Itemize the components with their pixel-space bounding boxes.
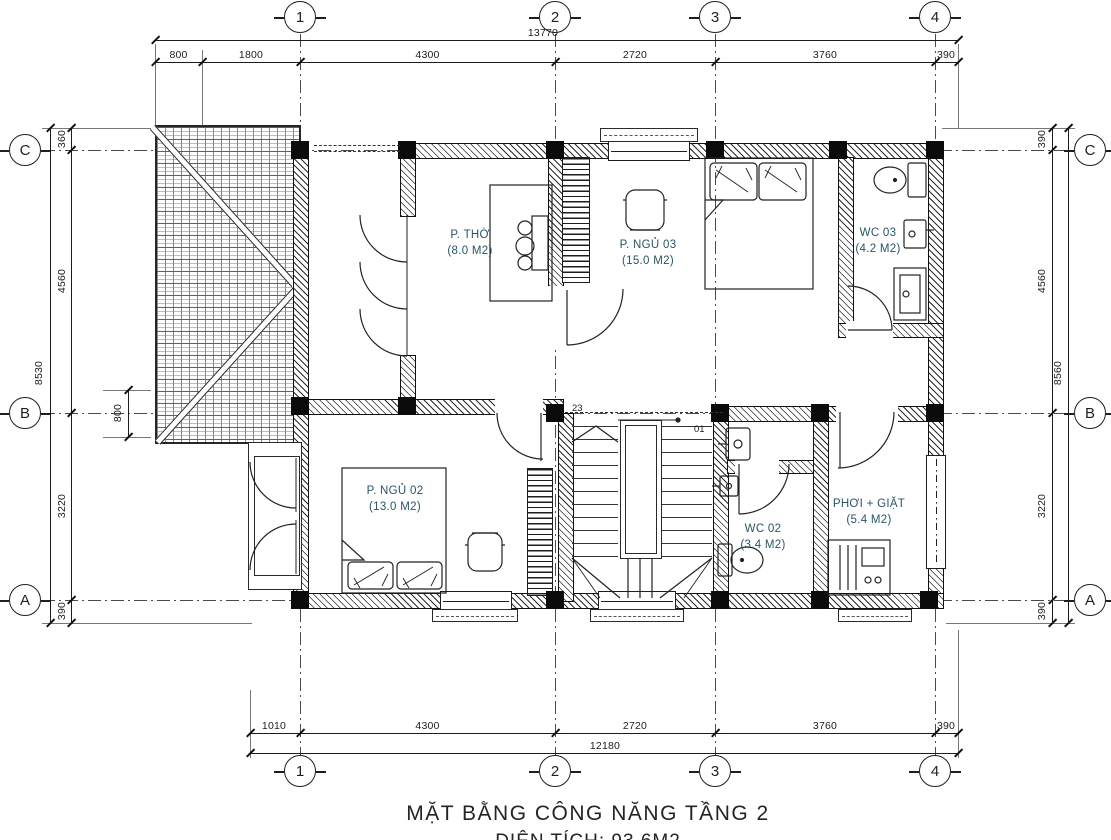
stair-direction-arrow [572, 418, 680, 442]
room-label-wc03: WC 03 (4.2 M2) [828, 226, 928, 257]
room-name: P. NGỦ 03 [588, 238, 708, 254]
room-area: (15.0 M2) [588, 254, 708, 270]
door-arc-wc02 [739, 464, 789, 514]
room-label-tho: P. THỜ (8.0 M2) [410, 228, 530, 259]
door-arc-wc03 [848, 286, 892, 330]
room-label-phoi-giat: PHƠI + GIẶT (5.4 M2) [814, 497, 924, 528]
room-area: (13.0 M2) [335, 500, 455, 516]
wardrobe-folding-doors [360, 215, 407, 356]
room-area: (3.4 M2) [713, 538, 813, 554]
floor-plan-sheet: 1 2 3 4 1 2 3 4 C B A C B A 800 1800 430… [0, 0, 1111, 840]
room-name: PHƠI + GIẶT [814, 497, 924, 513]
room-name: WC 03 [828, 226, 928, 242]
room-name: P. THỜ [410, 228, 530, 244]
plan-linework [0, 0, 1111, 840]
chair-bedroom02 [465, 533, 505, 571]
washing-machine [828, 540, 890, 595]
room-label-ngu02: P. NGỦ 02 (13.0 M2) [335, 484, 455, 515]
toilet-wc03 [874, 163, 926, 197]
chair-bedroom03 [623, 190, 667, 230]
closet-double-doors [250, 458, 296, 574]
room-label-wc02: WC 02 (3.4 M2) [713, 522, 813, 553]
bed-bedroom03 [705, 158, 813, 289]
room-label-ngu03: P. NGỦ 03 (15.0 M2) [588, 238, 708, 269]
room-name: WC 02 [713, 522, 813, 538]
room-name: P. NGỦ 02 [335, 484, 455, 500]
room-area: (8.0 M2) [410, 244, 530, 260]
drawing-title: MẶT BẰNG CÔNG NĂNG TẦNG 2 [318, 802, 858, 826]
stair-winder-lines [572, 558, 712, 598]
sink-hallway [718, 428, 750, 460]
door-arc-bedroom02 [497, 413, 543, 461]
door-arc-bedroom03 [567, 289, 623, 345]
drawing-subtitle: DIỆN TÍCH: 93.6M2 [318, 831, 858, 840]
room-area: (5.4 M2) [814, 513, 924, 529]
door-arc-laundry [838, 412, 894, 468]
sink-wc02 [712, 476, 738, 496]
room-area: (4.2 M2) [828, 242, 928, 258]
lavatory-cabinet-wc03 [894, 268, 926, 320]
